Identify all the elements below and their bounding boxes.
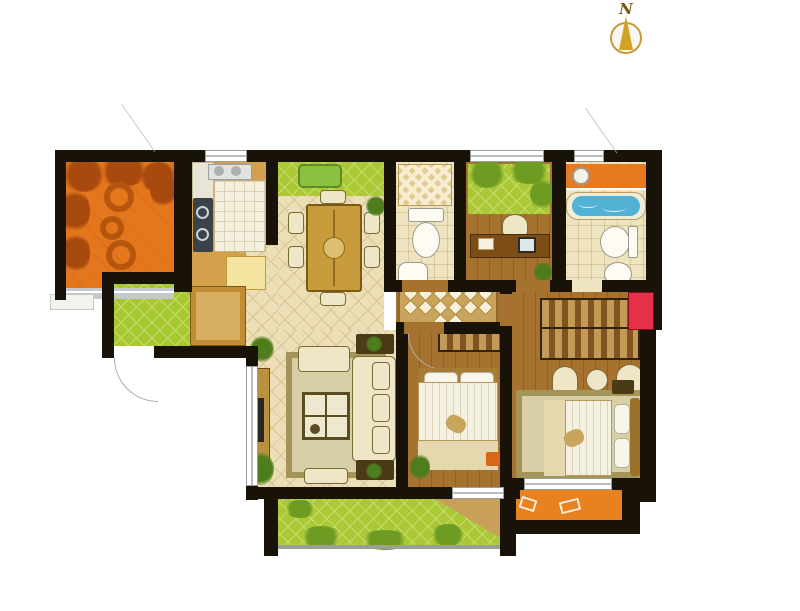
bathroom-window xyxy=(574,150,604,162)
burner-icon xyxy=(196,228,209,241)
compass: N xyxy=(602,0,650,62)
shoe-cabinet-top xyxy=(196,292,240,340)
rug-diamond-icon xyxy=(403,299,419,315)
compass-arrow-icon xyxy=(619,16,633,50)
wall xyxy=(55,150,66,300)
plant-icon xyxy=(366,463,382,479)
terrace-plant-icon xyxy=(62,232,90,274)
hallway-runner-rug xyxy=(398,290,498,324)
dining-chair-icon xyxy=(320,190,346,204)
rug-diamond-icon xyxy=(478,299,494,315)
toilet-tank xyxy=(628,226,638,258)
master-bed-headboard xyxy=(630,398,640,476)
kitchen-window xyxy=(205,150,247,162)
dining-chair-icon xyxy=(364,246,380,268)
burner-icon xyxy=(196,206,209,219)
rug-diamond-icon xyxy=(418,299,434,315)
terrace-chair-icon xyxy=(106,240,136,270)
pouf-icon xyxy=(552,366,578,392)
teapot-icon xyxy=(310,424,320,434)
water-wave-icon xyxy=(578,200,598,208)
toilet-tank xyxy=(408,208,444,222)
bathroom-door-gap xyxy=(402,280,448,292)
pouf-icon xyxy=(586,369,608,391)
loveseat xyxy=(298,346,350,372)
sink-basin-icon xyxy=(231,166,241,176)
fridge xyxy=(226,256,266,290)
study-door-gap xyxy=(516,280,550,292)
wall xyxy=(646,150,662,292)
utility-unit xyxy=(628,292,654,330)
wall xyxy=(454,162,466,290)
sketch-line xyxy=(121,104,155,152)
vanity-sink-icon xyxy=(572,167,590,185)
plant-icon xyxy=(534,262,552,282)
study-window xyxy=(470,150,544,162)
water-wave-icon xyxy=(602,204,626,212)
coffee-table xyxy=(302,392,350,440)
terrace-chair-icon xyxy=(104,182,134,212)
bush-icon xyxy=(430,524,466,546)
pillow-icon xyxy=(614,404,630,434)
bush-icon xyxy=(530,178,554,210)
wall xyxy=(396,322,408,499)
rug-diamond-icon xyxy=(463,299,479,315)
computer-icon xyxy=(518,237,536,253)
balcony-railing xyxy=(278,545,500,549)
master-wardrobe xyxy=(540,298,640,360)
toilet-icon xyxy=(600,226,630,258)
wall xyxy=(552,162,566,290)
terrace-table-icon xyxy=(100,216,124,240)
wardrobe-shelf-line xyxy=(542,327,638,329)
bench xyxy=(304,468,348,484)
wall xyxy=(384,150,470,162)
paper-icon xyxy=(478,238,494,250)
sketch-line xyxy=(585,108,617,154)
sofa-cushion-icon xyxy=(372,394,390,422)
bedroom2-door-gap xyxy=(404,322,444,334)
rug-diamond-icon xyxy=(448,299,464,315)
dining-chair-icon xyxy=(288,246,304,268)
wall xyxy=(504,520,640,534)
shower-area xyxy=(398,164,452,206)
sofa-cushion-icon xyxy=(372,362,390,390)
entry-door-gap xyxy=(114,346,154,358)
desk-chair-icon xyxy=(502,214,528,236)
wall xyxy=(55,150,176,162)
sofa-cushion-icon xyxy=(372,426,390,454)
wall xyxy=(176,150,205,162)
dining-chair-icon xyxy=(288,212,304,234)
entry-door-swing-arc xyxy=(114,358,158,402)
master-bath-door-gap xyxy=(572,280,602,292)
wall xyxy=(102,272,192,284)
plant-icon xyxy=(366,196,386,216)
bush-icon xyxy=(468,160,506,188)
terrace-plant-icon xyxy=(150,172,176,208)
nightstand xyxy=(612,380,634,394)
master-door-gap xyxy=(500,294,512,326)
dining-chair-icon xyxy=(320,292,346,306)
rug-diamond-icon xyxy=(433,299,449,315)
wall xyxy=(640,328,656,502)
toilet-icon xyxy=(412,222,440,258)
living-room-window xyxy=(246,366,258,486)
wall xyxy=(654,292,662,330)
plant-icon xyxy=(366,336,382,352)
living-balcony-window xyxy=(452,487,504,499)
wall xyxy=(264,487,278,556)
pillow-icon xyxy=(614,438,630,468)
wall xyxy=(247,150,384,162)
floor-plan: N xyxy=(0,0,800,611)
wall xyxy=(266,162,278,245)
kitchen-island xyxy=(214,180,266,252)
master-balcony-door xyxy=(524,478,612,490)
sink-basin-icon xyxy=(214,166,224,176)
wall xyxy=(622,487,640,534)
wall xyxy=(544,150,574,162)
garden-bench xyxy=(298,164,342,188)
bush-icon xyxy=(284,500,316,518)
wall xyxy=(384,150,396,292)
plant-icon xyxy=(410,454,430,480)
table-centerpiece-icon xyxy=(323,237,345,259)
